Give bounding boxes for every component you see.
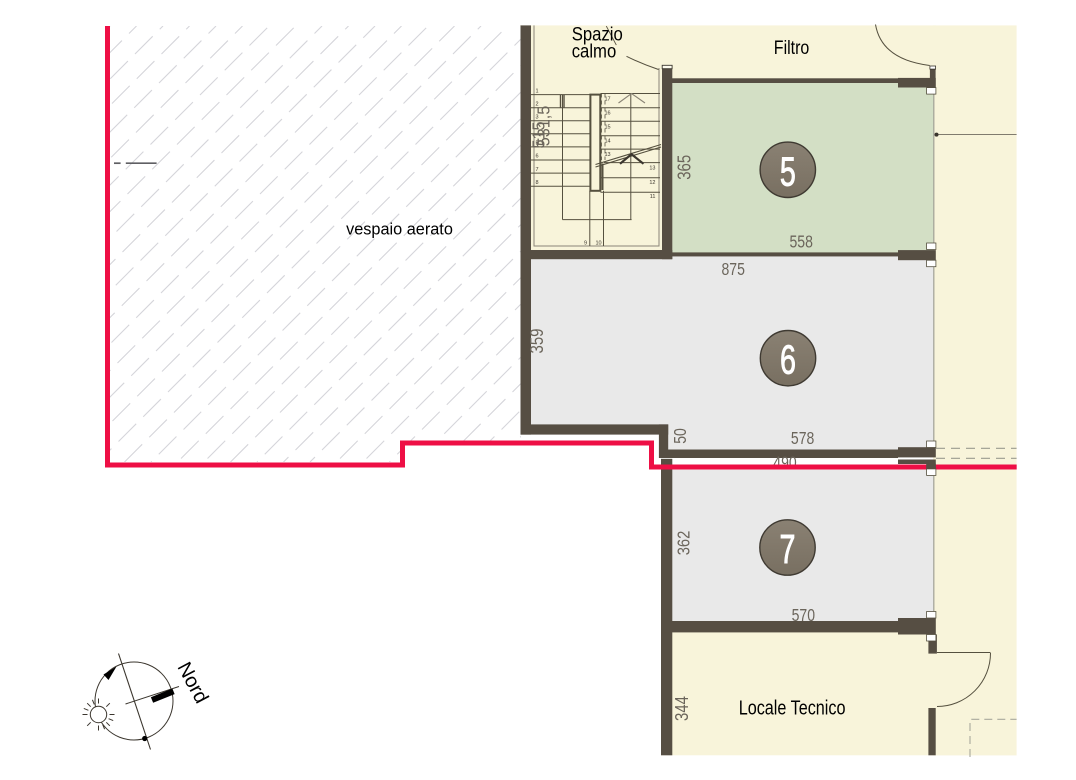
svg-text:11: 11 [650, 194, 656, 200]
svg-text:578: 578 [791, 428, 814, 448]
svg-text:1: 1 [536, 88, 539, 94]
svg-text:6: 6 [780, 338, 796, 383]
svg-text:558: 558 [789, 232, 812, 252]
svg-text:14: 14 [605, 138, 611, 144]
svg-text:17: 17 [605, 97, 611, 103]
svg-text:12: 12 [649, 180, 655, 186]
svg-text:Filtro: Filtro [774, 37, 810, 59]
svg-text:6: 6 [536, 154, 539, 160]
svg-text:13: 13 [649, 166, 655, 172]
svg-text:359: 359 [526, 329, 547, 354]
svg-text:515: 515 [529, 121, 549, 148]
svg-text:344: 344 [672, 696, 693, 721]
svg-text:calmo: calmo [572, 40, 617, 61]
svg-text:365: 365 [674, 155, 695, 180]
svg-text:490: 490 [773, 453, 796, 473]
svg-text:13: 13 [605, 152, 611, 158]
svg-text:362: 362 [674, 531, 694, 556]
svg-text:15: 15 [605, 124, 611, 130]
svg-text:570: 570 [792, 605, 815, 625]
svg-text:875: 875 [721, 259, 744, 279]
svg-text:Locale Tecnico: Locale Tecnico [739, 697, 846, 719]
svg-text:8: 8 [536, 180, 539, 186]
svg-text:vespaio aerato: vespaio aerato [346, 219, 453, 238]
svg-text:50: 50 [670, 428, 690, 444]
svg-text:9: 9 [584, 241, 587, 247]
svg-text:7: 7 [780, 527, 796, 572]
svg-text:10: 10 [596, 241, 602, 247]
svg-text:7: 7 [536, 167, 539, 173]
svg-text:16: 16 [605, 111, 611, 117]
svg-text:5: 5 [780, 149, 796, 194]
